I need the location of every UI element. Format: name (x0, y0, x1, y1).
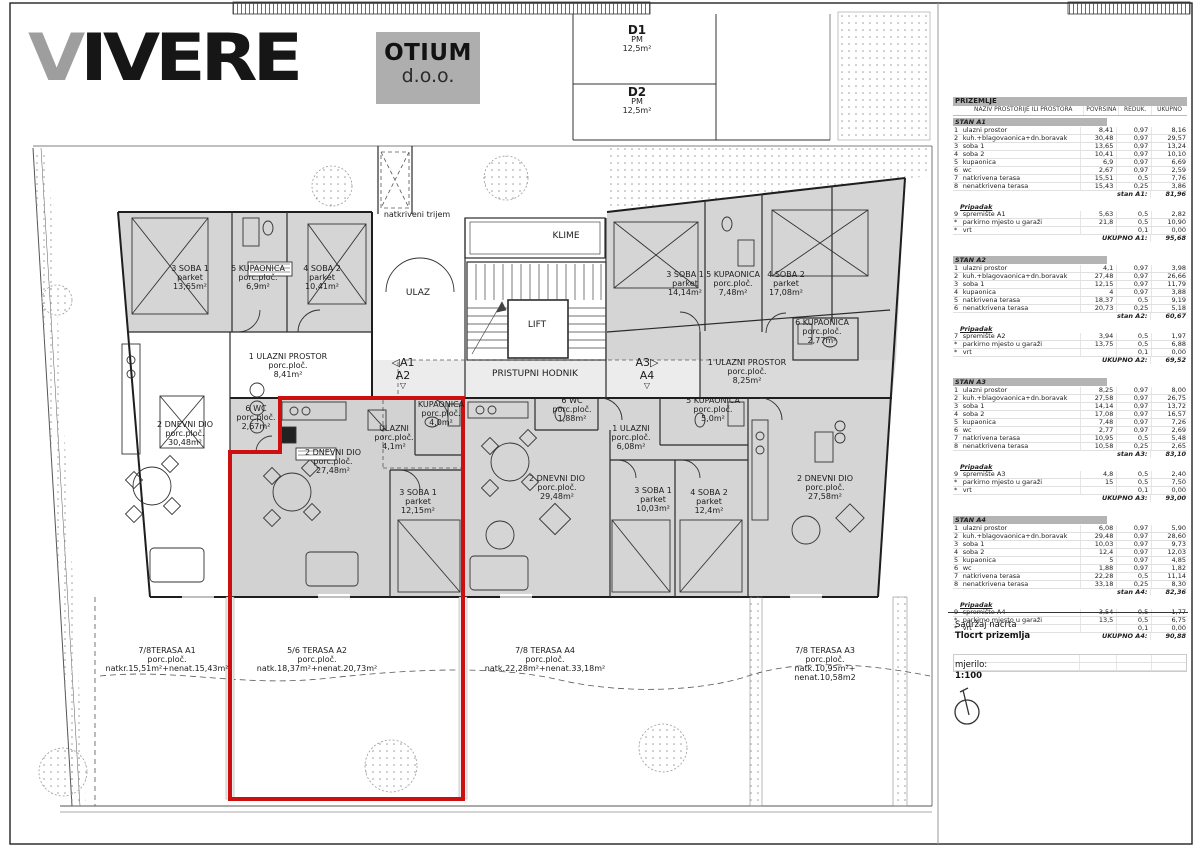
table-row: *vrt0,10,00 (953, 487, 1187, 495)
room-label-a4-wc: 6 WCporc.ploč.1,88m² (552, 396, 591, 423)
table-header: NAZIV PROSTORIJE ILI PROSTORAPOVRŠINA (m… (953, 106, 1187, 116)
pripadak-label: Pripadak (953, 601, 1187, 609)
parking-boxes (573, 14, 830, 140)
table-row: 4kupaonica40,973,88 (953, 289, 1187, 297)
table-row: 4soba 210,410,9710,10 (953, 151, 1187, 159)
table-row: 3soba 112,150,9711,79 (953, 281, 1187, 289)
table-row: *parkirno mjesto u garaži21,80,510,90 (953, 219, 1187, 227)
table-row: 1ulazni prostor6,080,975,90 (953, 525, 1187, 533)
pripadak-label: Pripadak (953, 463, 1187, 471)
parking-spot-d2: D2PM12,5m² (623, 88, 652, 115)
staircase (467, 264, 606, 354)
area-table: PRIZEMLJENAZIV PROSTORIJE ILI PROSTORAPO… (953, 97, 1187, 672)
room-label-a4-dnevni: 2 DNEVNI DIOporc.ploč.29,48m² (529, 474, 585, 501)
parking-spot-d1: D1PM12,5m² (623, 26, 652, 53)
top-wall-hatch-right (1068, 2, 1190, 14)
room-label-a1-kupaonica: 5 KUPAONICAporc.ploč.6,9m² (231, 264, 285, 291)
table-row: 1ulazni prostor8,410,978,16 (953, 127, 1187, 135)
section-band: STAN A3 (953, 378, 1107, 386)
table-row: 5kupaonica6,90,976,69 (953, 159, 1187, 167)
label-klime: KLIME (552, 231, 579, 241)
table-row: 2kuh.+blagovaonica+dn.boravak30,480,9729… (953, 135, 1187, 143)
table-row: *parkirno mjesto u garaži150,57,50 (953, 479, 1187, 487)
section-band: STAN A4 (953, 516, 1107, 524)
room-label-a3-kupaonica: 5 KUPAONICAporc.ploč.7,48m² (706, 270, 760, 297)
room-label-a3-dnevni: 2 DNEVNI DIOporc.ploč.27,58m² (797, 474, 853, 501)
table-row: 4soba 212,40,9712,03 (953, 549, 1187, 557)
table-row: 6wc2,770,972,69 (953, 427, 1187, 435)
unit-marker-a3-a4: A3▷A4▽ (636, 356, 659, 390)
table-row: 1ulazni prostor4,10,973,98 (953, 265, 1187, 273)
room-label-a2-kupaonica: KUPAONICAporc.ploč.4,0m² (418, 400, 464, 427)
section-subtotal: stan A2:60,67 (953, 313, 1187, 320)
section-subtotal: stan A3:83,10 (953, 451, 1187, 458)
scale-value: 1:100 (955, 671, 987, 682)
room-label-a1-wc: 6 WCporc.ploč.2,67m² (236, 404, 275, 431)
table-row: 5natkrivena terasa18,370,59,19 (953, 297, 1187, 305)
logo-otium-box: OTIUM d.o.o. (376, 32, 480, 104)
room-label-a3-ulazni: 1 ULAZNI PROSTORporc.ploč.8,25m² (708, 358, 786, 385)
table-row: 3soba 113,650,9713,24 (953, 143, 1187, 151)
room-label-a4-soba2: 4 SOBA 2parket12,4m² (690, 488, 728, 515)
pripadak-label: Pripadak (953, 203, 1187, 211)
section-subtotal: stan A4:82,36 (953, 589, 1187, 596)
table-row: 2kuh.+blagovaonica+dn.boravak27,480,9726… (953, 273, 1187, 281)
section-total: UKUPNO A1:95,68 (953, 235, 1187, 242)
section-total: UKUPNO A2:69,52 (953, 357, 1187, 364)
table-row: 8nenatkrivena terasa33,180,258,30 (953, 581, 1187, 589)
empty-rows-box (953, 654, 1187, 672)
room-label-a3-soba1: 3 SOBA 1parket14,14m² (666, 270, 704, 297)
section-band: STAN A2 (953, 256, 1107, 264)
terrace-dividers (226, 597, 907, 806)
table-title: PRIZEMLJE (953, 97, 1187, 106)
room-label-a2-ulazni: ULAZNIporc.ploč.4,1m² (374, 424, 413, 451)
content-label: Sadržaj nacrta (955, 620, 1017, 630)
table-row (954, 655, 1186, 663)
room-fills (118, 178, 905, 597)
table-row: 3soba 110,030,979,73 (953, 541, 1187, 549)
room-label-a3-kupaonica6: 6 KUPAONICAporc.ploč.2,77m² (795, 318, 849, 345)
section-total: UKUPNO A3:93,00 (953, 495, 1187, 502)
scale-label: mjerilo: (955, 660, 987, 670)
table-row: 8nenatkrivena terasa15,430,253,86 (953, 183, 1187, 191)
terrace-label-a1: 7/8TERASA A1porc.ploč.natkr.15,51m²+nena… (106, 646, 229, 673)
titleblock-scale: mjerilo: 1:100 (955, 660, 987, 682)
table-row: 7natkrivena terasa22,280,511,14 (953, 573, 1187, 581)
table-row: *vrt0,10,00 (953, 227, 1187, 235)
label-natkriveni-trijem: natkriveni trijem (384, 210, 450, 219)
label-lift: LIFT (528, 320, 546, 330)
titleblock-content: Sadržaj nacrta Tlocrt prizemlja (955, 620, 1030, 642)
table-row: 9spremište A43,540,51,77 (953, 609, 1187, 617)
room-label-a1-soba2: 4 SOBA 2parket10,41m² (303, 264, 341, 291)
room-label-a2-soba1: 3 SOBA 1parket12,15m² (399, 488, 437, 515)
drawing-sheet: VIVERE OTIUM d.o.o. D1PM12,5m² D2PM12,5m… (0, 0, 1200, 849)
table-row: 9spremište A34,80,52,40 (953, 471, 1187, 479)
section-subtotal: stan A1:81,96 (953, 191, 1187, 198)
table-row: *parkirno mjesto u garaži13,750,56,88 (953, 341, 1187, 349)
table-row: 2kuh.+blagovaonica+dn.boravak27,580,9726… (953, 395, 1187, 403)
vegetation-band-top-right (838, 12, 930, 140)
room-label-a4-soba1: 3 SOBA 1parket10,03m² (634, 486, 672, 513)
table-row: 6wc1,880,971,82 (953, 565, 1187, 573)
table-row: 9spremište A15,630,52,82 (953, 211, 1187, 219)
table-row: 7spremište A23,940,51,97 (953, 333, 1187, 341)
table-row: 6nenatkrivena terasa20,730,255,18 (953, 305, 1187, 313)
room-label-a4-kupaonica: 5 KUPAONICAporc.ploč.5,0m² (686, 396, 740, 423)
table-row: 2kuh.+blagovaonica+dn.boravak29,480,9728… (953, 533, 1187, 541)
company-logo: VIVERE OTIUM d.o.o. (28, 20, 488, 115)
label-pristupni-hodnik: PRISTUPNI HODNIK (492, 369, 578, 379)
titleblock-divider (948, 612, 1188, 613)
unit-marker-a1-a2: ◁A1A2▽ (392, 356, 415, 390)
table-row: 7natkrivena terasa10,950,55,48 (953, 435, 1187, 443)
pripadak-label: Pripadak (953, 325, 1187, 333)
section-band: STAN A1 (953, 118, 1107, 126)
table-row: *vrt0,10,00 (953, 349, 1187, 357)
table-row: 6wc2,670,972,59 (953, 167, 1187, 175)
terrace-label-a3: 7/8 TERASA A3porc.ploč.natk.10,95m²+nena… (794, 646, 855, 682)
room-label-a2-dnevni: 2 DNEVNI DIOporc.ploč.27,48m² (305, 448, 361, 475)
table-row: 5kupaonica50,974,85 (953, 557, 1187, 565)
logo-otium-label: OTIUM (376, 40, 480, 66)
table-row: 7natkrivena terasa15,510,57,76 (953, 175, 1187, 183)
table-row: 4soba 217,080,9716,57 (953, 411, 1187, 419)
drawing-title: Tlocrt prizemlja (955, 631, 1030, 642)
room-label-a4-ulazni: 1 ULAZNIporc.ploč.6,08m² (611, 424, 650, 451)
table-row: 8nenatkrivena terasa10,580,252,65 (953, 443, 1187, 451)
terrace-label-a4: 7/8 TERASA A4porc.ploč.natk.22,28m²+nena… (485, 646, 605, 673)
room-label-a1-dnevni: 2 DNEVNI DIOporc.ploč.30,48m² (157, 420, 213, 447)
table-row (954, 663, 1186, 671)
label-ulaz: ULAZ (406, 288, 430, 298)
logo-doo-label: d.o.o. (376, 66, 480, 86)
terrace-label-a2: 5/6 TERASA A2porc.ploč.natk.18,37m²+nena… (257, 646, 377, 673)
room-label-a1-soba1: 3 SOBA 1parket13,65m² (171, 264, 209, 291)
north-arrow (955, 688, 979, 724)
top-wall-hatch-left (233, 2, 650, 14)
table-row: 3soba 114,140,9713,72 (953, 403, 1187, 411)
room-label-a1-ulazni: 1 ULAZNI PROSTORporc.ploč.8,41m² (249, 352, 327, 379)
table-row: 5kupaonica7,480,977,26 (953, 419, 1187, 427)
room-label-a3-soba2: 4 SOBA 2parket17,08m² (767, 270, 805, 297)
table-row: 1ulazni prostor8,250,978,00 (953, 387, 1187, 395)
